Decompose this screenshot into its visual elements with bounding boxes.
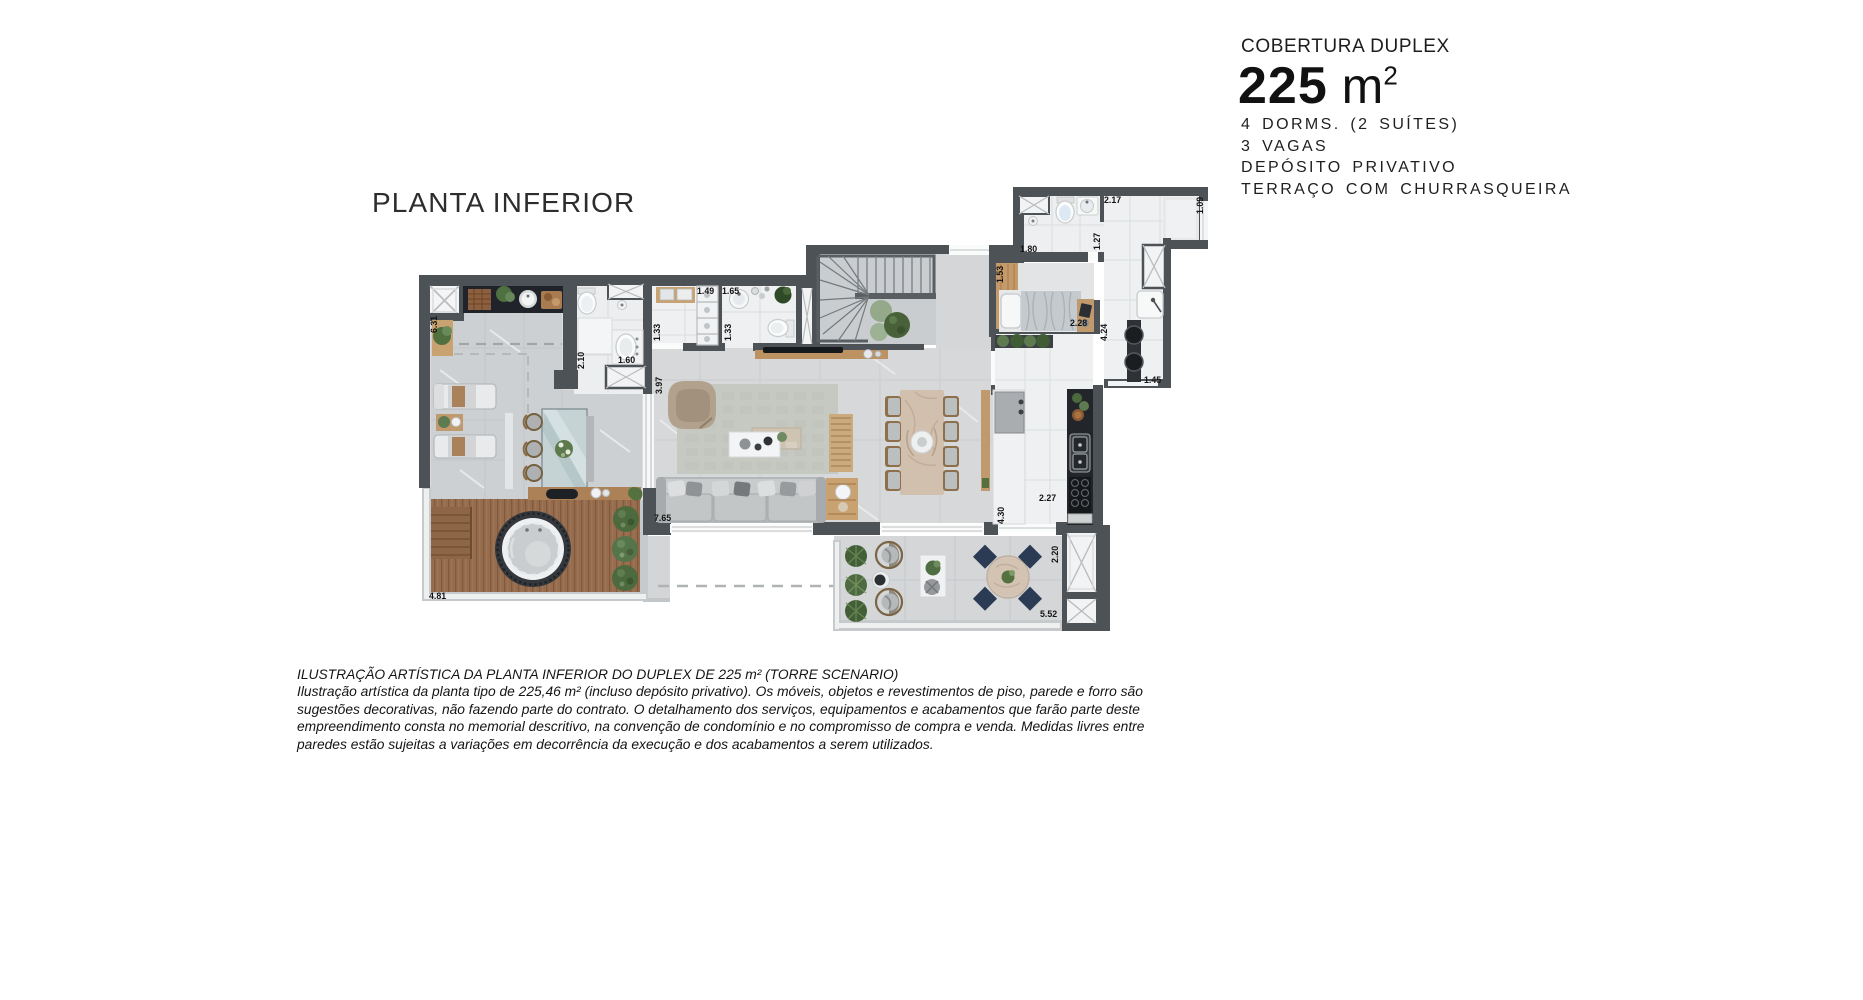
svg-text:1.53: 1.53 bbox=[995, 266, 1005, 283]
svg-text:4.30: 4.30 bbox=[996, 507, 1006, 524]
svg-text:1.49: 1.49 bbox=[697, 286, 714, 296]
svg-text:1.65: 1.65 bbox=[722, 286, 739, 296]
svg-text:4.81: 4.81 bbox=[429, 591, 446, 601]
svg-text:2.17: 2.17 bbox=[1104, 195, 1121, 205]
svg-text:2.28: 2.28 bbox=[1070, 318, 1087, 328]
svg-text:2.20: 2.20 bbox=[1050, 546, 1060, 563]
svg-text:1.60: 1.60 bbox=[618, 355, 635, 365]
svg-text:4.24: 4.24 bbox=[1099, 324, 1109, 341]
svg-text:1.27: 1.27 bbox=[1092, 233, 1102, 250]
svg-text:1.09: 1.09 bbox=[1195, 197, 1205, 214]
svg-text:2.10: 2.10 bbox=[576, 352, 586, 369]
svg-text:3.97: 3.97 bbox=[654, 377, 664, 394]
svg-text:1.80: 1.80 bbox=[1020, 244, 1037, 254]
svg-text:1.33: 1.33 bbox=[652, 324, 662, 341]
svg-text:6.31: 6.31 bbox=[429, 316, 439, 333]
svg-text:2.27: 2.27 bbox=[1039, 493, 1056, 503]
svg-text:1.33: 1.33 bbox=[723, 324, 733, 341]
svg-text:7.65: 7.65 bbox=[654, 513, 671, 523]
svg-text:1.45: 1.45 bbox=[1144, 375, 1161, 385]
svg-text:5.52: 5.52 bbox=[1040, 609, 1057, 619]
